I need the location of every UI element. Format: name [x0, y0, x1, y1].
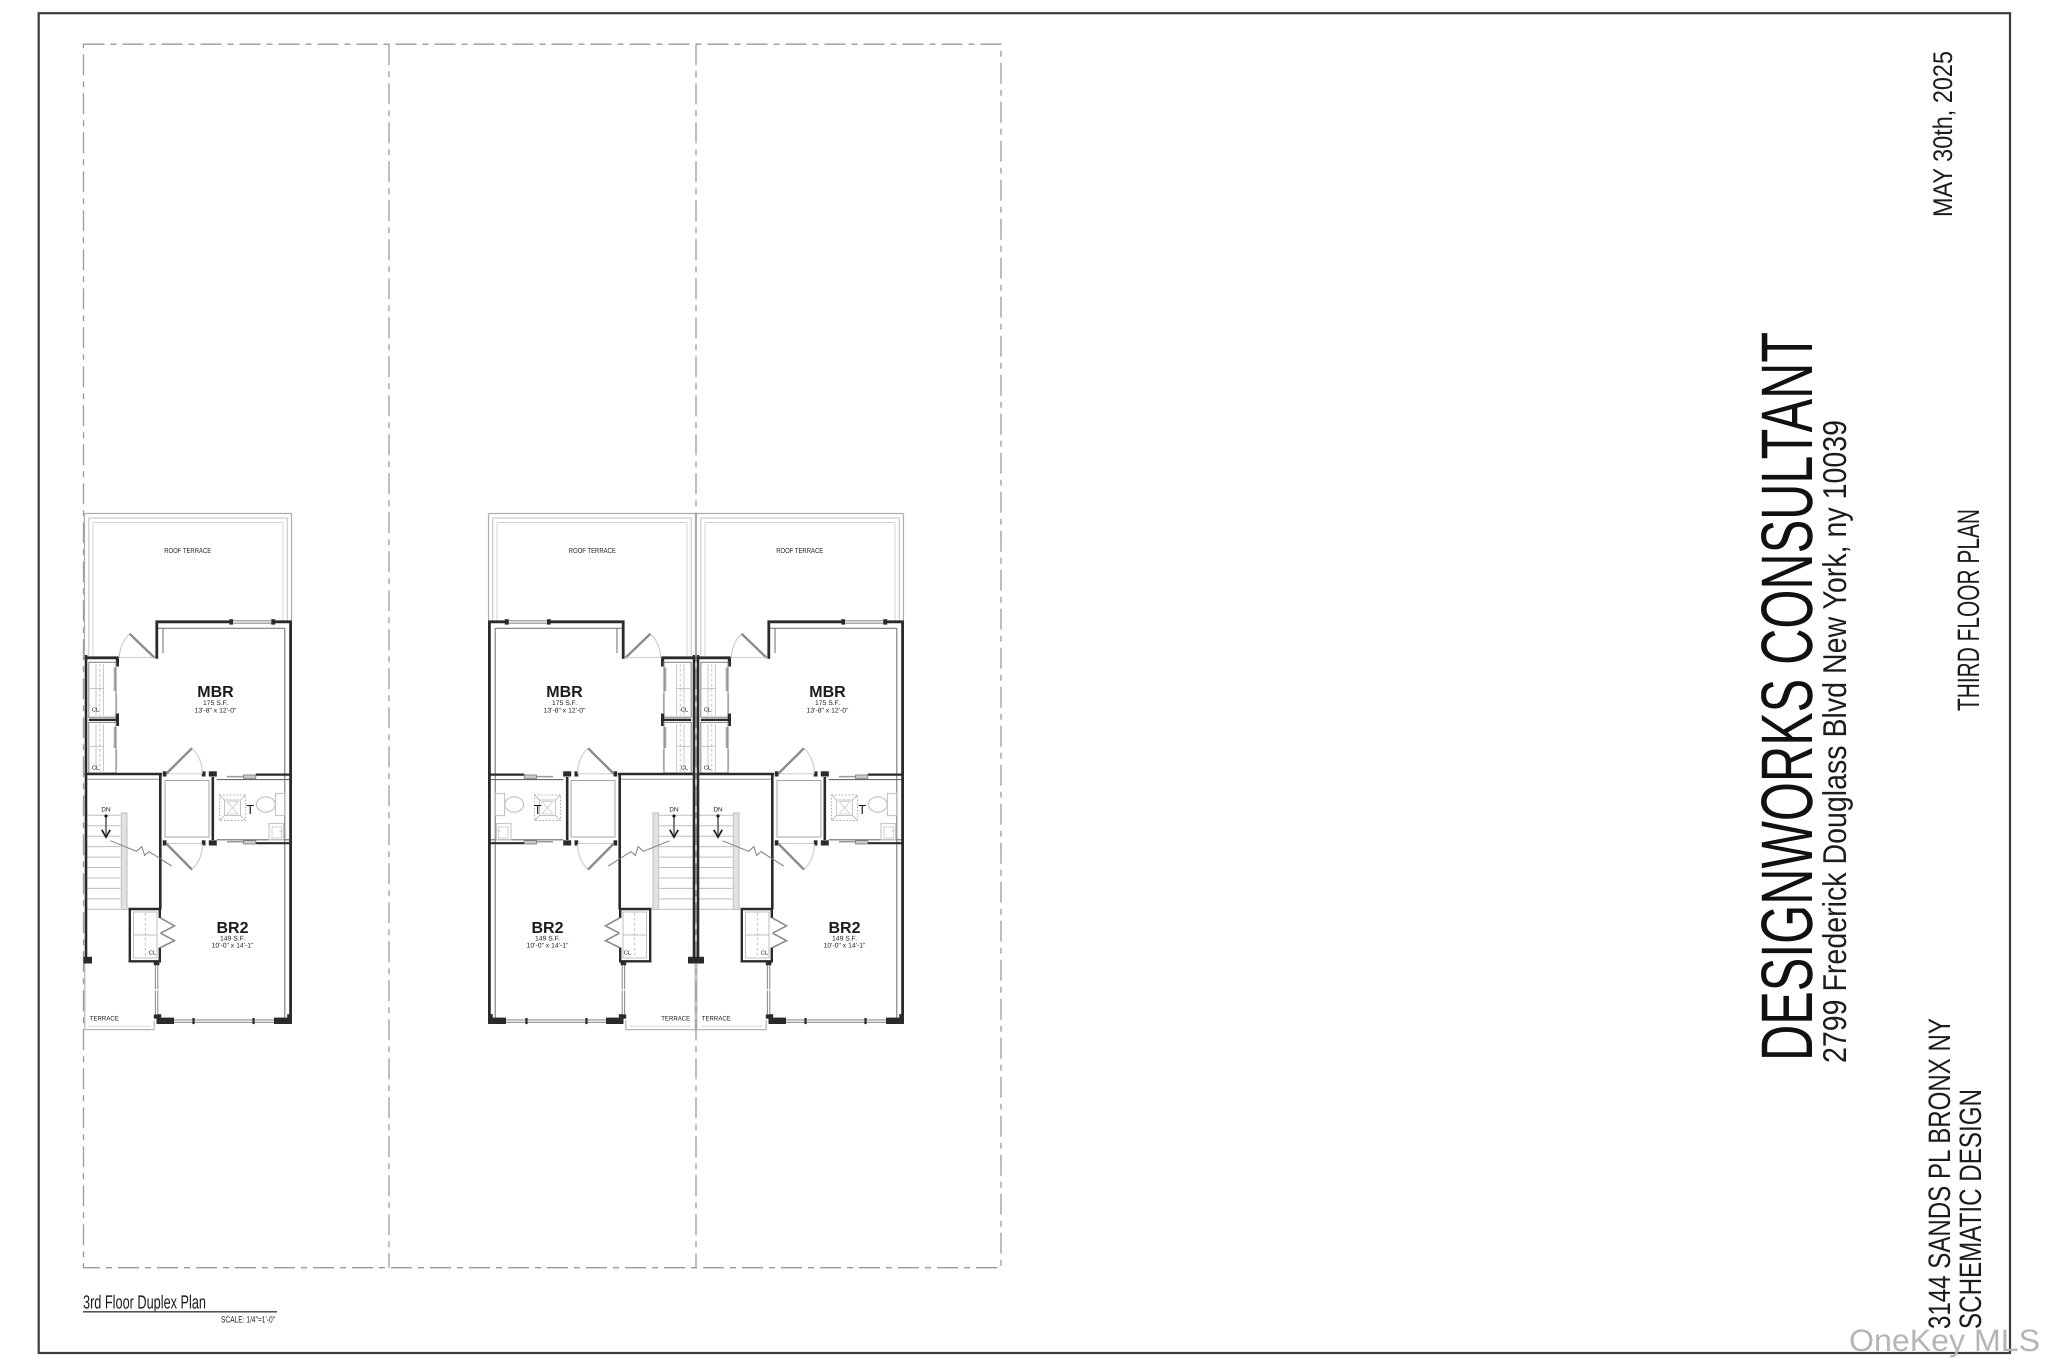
svg-text:SCALE: 1/4"=1'-0": SCALE: 1/4"=1'-0": [221, 1315, 275, 1325]
svg-text:175 S.F.: 175 S.F.: [203, 700, 228, 707]
svg-text:175 S.F.: 175 S.F.: [552, 700, 577, 707]
svg-text:CL: CL: [92, 765, 100, 772]
svg-text:3rd Floor Duplex Plan: 3rd Floor Duplex Plan: [83, 1293, 206, 1314]
svg-text:T: T: [246, 802, 254, 817]
svg-text:CL: CL: [704, 765, 712, 772]
svg-text:CL: CL: [92, 707, 100, 714]
svg-text:TERRACE: TERRACE: [702, 1016, 732, 1023]
svg-text:10'-0" x 14'-1": 10'-0" x 14'-1": [824, 943, 866, 950]
svg-text:T: T: [858, 802, 866, 817]
svg-text:CL: CL: [624, 950, 632, 957]
svg-text:BR2: BR2: [531, 920, 563, 937]
svg-text:149 S.F.: 149 S.F.: [535, 936, 560, 943]
svg-text:T: T: [534, 802, 542, 817]
svg-text:149 S.F.: 149 S.F.: [220, 936, 245, 943]
svg-text:OneKey MLS: OneKey MLS: [1849, 1323, 2040, 1358]
svg-text:BR2: BR2: [828, 920, 860, 937]
svg-text:SCHEMATIC DESIGN: SCHEMATIC DESIGN: [1953, 1089, 1988, 1329]
svg-text:13'-8" x 12'-0": 13'-8" x 12'-0": [544, 708, 586, 715]
svg-text:10'-0" x 14'-1": 10'-0" x 14'-1": [212, 943, 254, 950]
svg-text:DN: DN: [713, 807, 723, 814]
svg-text:TERRACE: TERRACE: [661, 1016, 691, 1023]
svg-text:CL: CL: [681, 707, 689, 714]
svg-text:13'-8" x 12'-0": 13'-8" x 12'-0": [807, 708, 849, 715]
svg-text:TERRACE: TERRACE: [90, 1016, 120, 1023]
svg-text:175 S.F.: 175 S.F.: [815, 700, 840, 707]
svg-text:MBR: MBR: [197, 684, 234, 701]
svg-text:MBR: MBR: [546, 684, 583, 701]
svg-text:13'-8" x 12'-0": 13'-8" x 12'-0": [195, 708, 237, 715]
svg-text:ROOF TERRACE: ROOF TERRACE: [776, 546, 823, 555]
svg-text:BR2: BR2: [216, 920, 248, 937]
svg-text:CL: CL: [149, 950, 157, 957]
svg-text:2799 Frederick Douglass Blvd N: 2799 Frederick Douglass Blvd New York, n…: [1816, 420, 1853, 1063]
svg-text:149 S.F.: 149 S.F.: [832, 936, 857, 943]
svg-text:CL: CL: [681, 765, 689, 772]
svg-text:CL: CL: [704, 707, 712, 714]
svg-text:3144 SANDS PL BRONX NY: 3144 SANDS PL BRONX NY: [1922, 1018, 1957, 1329]
svg-text:DN: DN: [101, 807, 111, 814]
svg-text:DN: DN: [669, 807, 679, 814]
svg-text:MBR: MBR: [809, 684, 846, 701]
svg-text:ROOF TERRACE: ROOF TERRACE: [569, 546, 616, 555]
svg-text:MAY 30th, 2025: MAY 30th, 2025: [1928, 51, 1958, 217]
svg-text:ROOF TERRACE: ROOF TERRACE: [164, 546, 211, 555]
svg-text:THIRD FLOOR PLAN: THIRD FLOOR PLAN: [1951, 509, 1986, 711]
svg-text:10'-0" x 14'-1": 10'-0" x 14'-1": [527, 943, 569, 950]
svg-text:CL: CL: [761, 950, 769, 957]
